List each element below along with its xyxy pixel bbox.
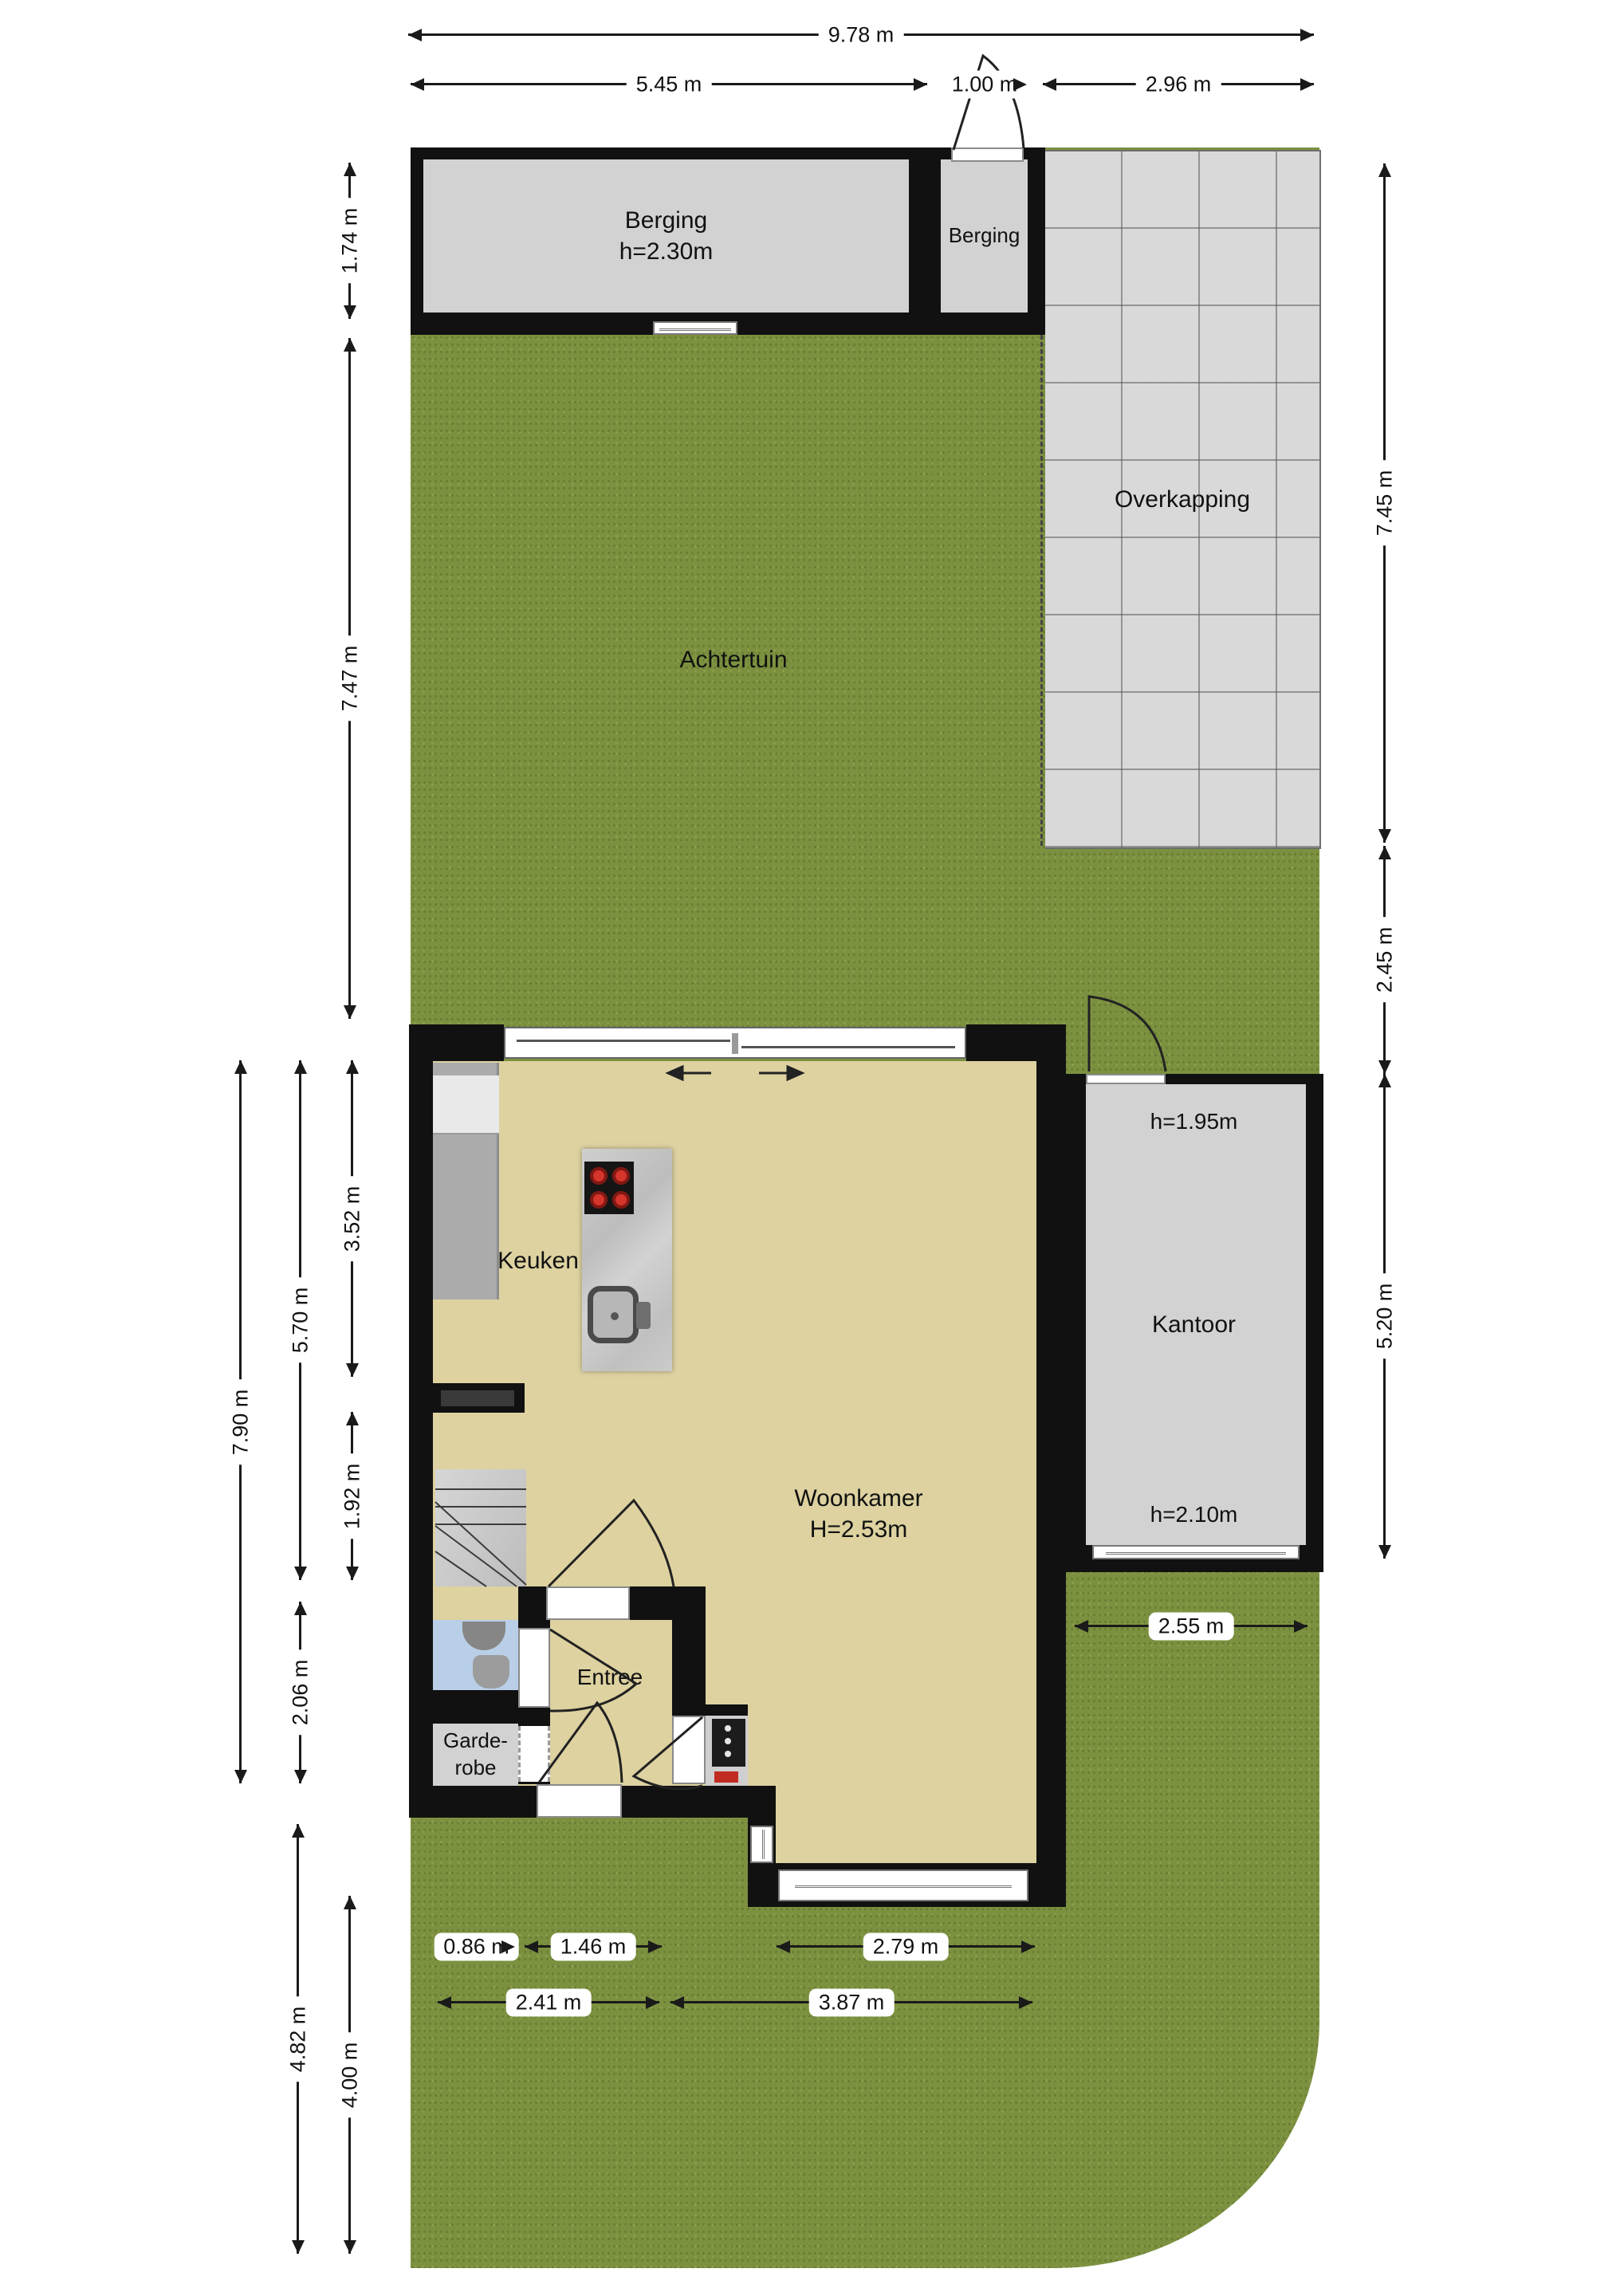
house-left-wall — [409, 1024, 433, 1818]
dim-right-kantoor: 5.20 m — [1383, 1074, 1386, 1559]
cooktop — [584, 1162, 634, 1214]
dim-top-right-span: 2.96 m — [1043, 83, 1314, 85]
dim-bottom-1: 0.86 m — [438, 1945, 515, 1948]
kitchen-wall-stub-inset — [441, 1390, 514, 1406]
dim-left-front: 4.00 m — [348, 1896, 351, 2254]
berging-large-room: Berging h=2.30m — [423, 159, 909, 313]
meter-sockets-icon — [714, 1771, 738, 1783]
entree-label: Entree — [550, 1663, 670, 1692]
entree-woonkamer-door-opening — [546, 1586, 630, 1620]
kitchen-appliance — [433, 1075, 499, 1134]
achtertuin-label: Achtertuin — [606, 644, 861, 675]
berging-large-height-label: h=2.30m — [619, 236, 714, 267]
faucet-icon — [636, 1302, 651, 1329]
sink — [588, 1286, 639, 1343]
house-right-wall — [1036, 1024, 1066, 1907]
toilet-icon — [473, 1655, 509, 1689]
dim-left-entree: 2.06 m — [299, 1602, 301, 1783]
dim-right-gap: 2.45 m — [1383, 846, 1386, 1074]
kantoor-block: h=1.95m Kantoor h=2.10m — [1064, 1074, 1323, 1572]
meterkast-door-opening — [672, 1716, 706, 1784]
dim-left-berging: 1.74 m — [348, 163, 351, 319]
kantoor-door-opening — [1086, 1074, 1166, 1084]
berging-block: Berging h=2.30m Berging — [411, 147, 1045, 335]
dim-left-achtertuin: 7.47 m — [348, 338, 351, 1019]
kantoor-height-bottom-label: h=2.10m — [1064, 1500, 1323, 1529]
house-top-wall-left — [409, 1024, 504, 1061]
dim-left-mid: 1.92 m — [351, 1412, 353, 1580]
dim-bottom-3: 2.79 m — [777, 1945, 1035, 1948]
burner-icon — [590, 1167, 608, 1185]
sliding-door-center-post — [732, 1033, 738, 1054]
dim-left-house-upper: 5.70 m — [299, 1060, 301, 1580]
garderobe-room: Garde- robe — [433, 1724, 518, 1786]
dim-bottom-2: 1.46 m — [525, 1945, 662, 1948]
dim-right-overkapping: 7.45 m — [1383, 163, 1386, 843]
toilet-room — [433, 1620, 518, 1690]
washbasin-icon — [462, 1622, 505, 1650]
berging-small-label: Berging — [949, 222, 1020, 250]
meterkast — [706, 1716, 748, 1786]
staircase — [435, 1469, 526, 1586]
overkapping-label: Overkapping — [1115, 484, 1250, 515]
house-floor-front — [776, 1786, 1036, 1863]
sliding-door-panel-right — [741, 1046, 955, 1048]
berging-window — [653, 321, 737, 335]
overkapping-area: Overkapping — [1045, 150, 1321, 849]
kantoor-height-top-label: h=1.95m — [1064, 1107, 1323, 1136]
garderobe-opening — [518, 1726, 550, 1782]
front-side-window — [750, 1826, 773, 1863]
berging-small-room: Berging — [941, 159, 1028, 313]
dim-kantoor-width: 2.55 m — [1075, 1625, 1307, 1627]
toilet-door-opening — [518, 1628, 550, 1708]
kantoor-window — [1092, 1545, 1300, 1559]
meterkast-top-wall — [706, 1704, 748, 1716]
woonkamer-front-window — [778, 1869, 1028, 1901]
dim-top-mid-span: 1.00 m — [942, 83, 1027, 85]
dim-top-total: 9.78 m — [408, 33, 1314, 36]
dim-bottom-5: 3.87 m — [670, 2001, 1032, 2003]
sliding-door-panel-left — [517, 1040, 730, 1042]
dim-top-left-span: 5.45 m — [411, 83, 927, 85]
burner-icon — [590, 1191, 608, 1209]
garderobe-label-line2: robe — [454, 1755, 496, 1782]
sink-drain-icon — [611, 1312, 619, 1320]
burner-icon — [612, 1167, 630, 1185]
woonkamer-label: Woonkamer H=2.53m — [739, 1483, 978, 1545]
berging-door-opening — [951, 147, 1024, 162]
keuken-label: Keuken — [474, 1245, 602, 1276]
garderobe-label-line1: Garde- — [443, 1728, 508, 1755]
dim-left-front-total: 4.82 m — [297, 1824, 299, 2254]
dim-left-keuken: 3.52 m — [351, 1060, 353, 1377]
overkapping-dashed-boundary — [1040, 335, 1043, 846]
front-door-opening — [537, 1784, 622, 1818]
electrical-panel-icon — [712, 1719, 745, 1767]
floorplan-canvas: Overkapping Achtertuin Berging h=2.30m B… — [0, 0, 1624, 2296]
kantoor-label: Kantoor — [1064, 1309, 1323, 1340]
burner-icon — [612, 1191, 630, 1209]
entree-right-wall — [672, 1586, 706, 1716]
berging-large-label: Berging — [625, 205, 707, 236]
sliding-door — [504, 1027, 966, 1059]
dim-bottom-4: 2.41 m — [438, 2001, 659, 2003]
dim-left-house-total: 7.90 m — [239, 1060, 242, 1783]
